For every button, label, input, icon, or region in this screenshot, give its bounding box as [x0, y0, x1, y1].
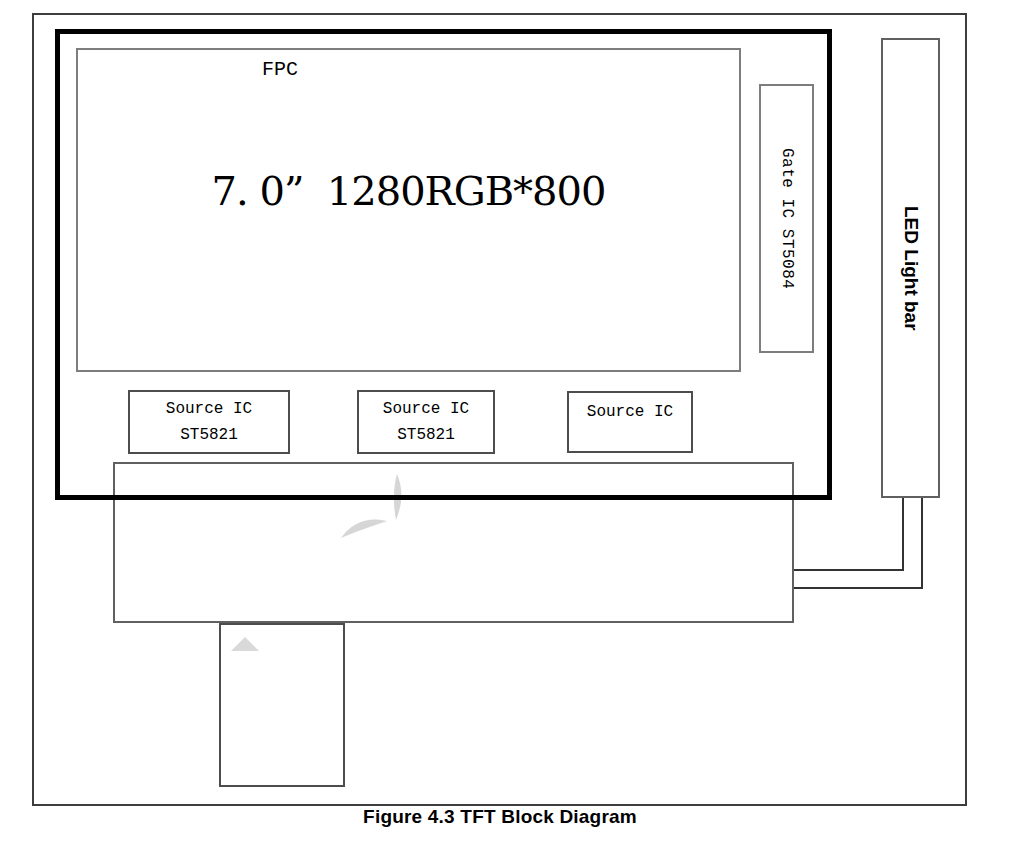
source-ic-box-3: Source IC — [567, 391, 693, 453]
page: { "diagram": { "caption": "Figure 4.3 TF… — [0, 0, 1026, 852]
gate-ic-label: Gate IC ST5084 — [778, 148, 796, 289]
led-light-bar-label: LED Light bar — [900, 206, 922, 331]
wire-led-to-fpc-1 — [794, 498, 904, 571]
source-ic-2-part-label: ST5821 — [359, 422, 493, 448]
source-ic-3-name-label: Source IC — [569, 399, 691, 425]
source-ic-box-2: Source IC ST5821 — [357, 390, 495, 454]
display-area: 7. 0” 1280RGB*800 — [76, 48, 741, 372]
gate-ic-box: Gate IC ST5084 — [759, 84, 814, 353]
source-ic-box-1: Source IC ST5821 — [128, 390, 290, 454]
led-light-bar-box: LED Light bar — [881, 38, 940, 498]
display-size-label: 7. 0” 1280RGB*800 — [212, 168, 606, 252]
source-ic-2-name-label: Source IC — [359, 396, 493, 422]
connector-box — [219, 623, 345, 787]
figure-caption: Figure 4.3 TFT Block Diagram — [0, 806, 1000, 828]
source-ic-1-name-label: Source IC — [130, 396, 288, 422]
fpc-label: FPC — [262, 58, 298, 81]
source-ic-1-part-label: ST5821 — [130, 422, 288, 448]
